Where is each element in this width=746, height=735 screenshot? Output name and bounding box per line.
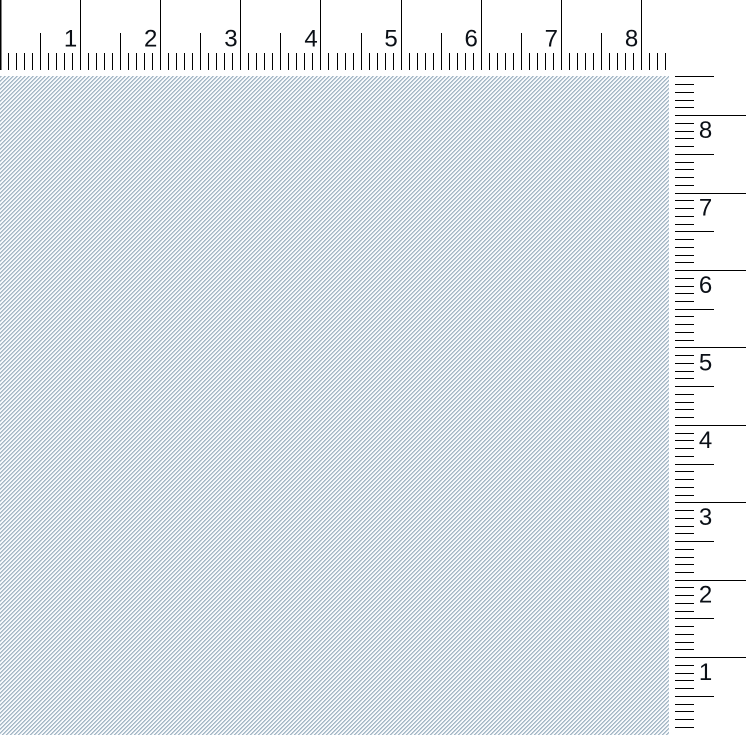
svg-text:2: 2 [699,582,712,609]
svg-text:2: 2 [144,26,157,53]
svg-text:1: 1 [699,659,712,686]
svg-text:8: 8 [699,117,712,144]
svg-text:6: 6 [465,26,478,53]
svg-text:8: 8 [625,26,638,53]
svg-text:6: 6 [699,272,712,299]
svg-text:5: 5 [384,26,397,53]
svg-text:4: 4 [699,427,712,454]
svg-text:3: 3 [699,504,712,531]
svg-text:7: 7 [699,195,712,222]
svg-text:7: 7 [545,26,558,53]
svg-text:1: 1 [64,26,77,53]
svg-text:4: 4 [304,26,317,53]
svg-text:3: 3 [224,26,237,53]
svg-text:5: 5 [699,349,712,376]
